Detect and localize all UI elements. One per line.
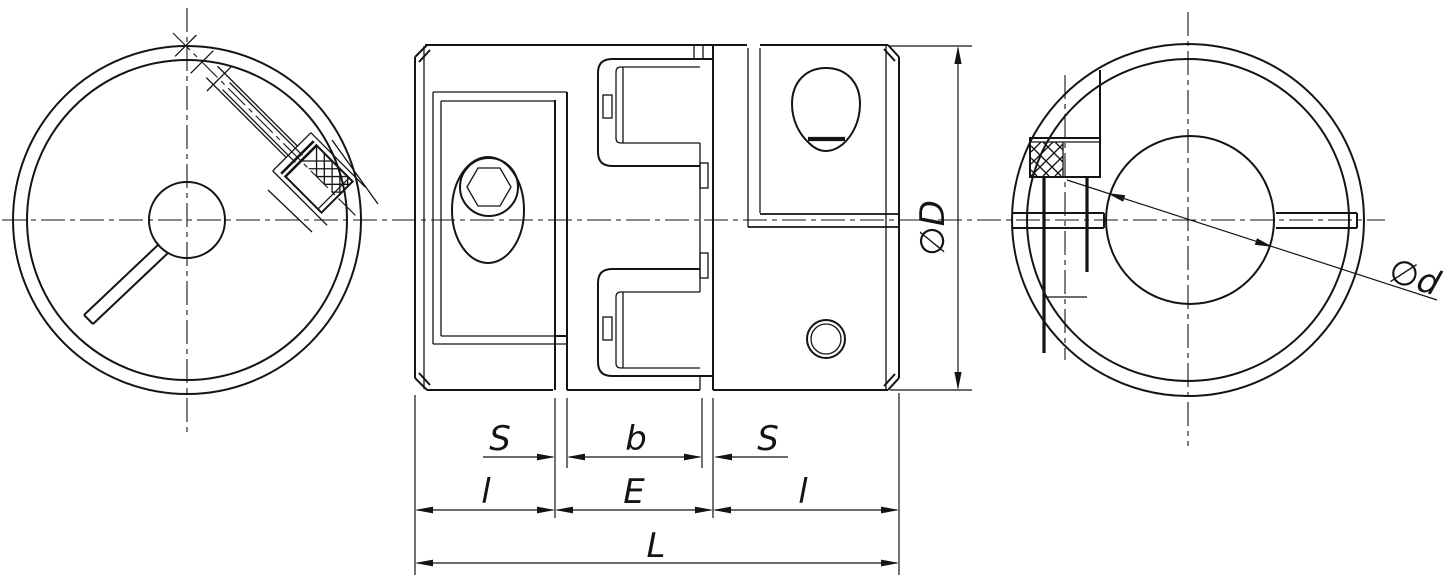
right-end-view — [1012, 12, 1364, 446]
spider-top-arm-outer — [598, 59, 713, 166]
spider-tab — [603, 317, 612, 340]
jaw-tab — [700, 253, 708, 278]
drawing-canvas: S b S l E l L ∅D ∅d — [0, 0, 1455, 579]
clamp-slit — [84, 244, 168, 324]
dim-label-l-right: l — [798, 472, 808, 512]
crosshatch — [1031, 142, 1063, 176]
screw-axis — [173, 33, 358, 218]
jaw-tab — [700, 163, 708, 188]
dim-label-outer-diameter: ∅D — [913, 200, 953, 256]
jaw-gap-edges — [694, 45, 703, 390]
dim-label-b: b — [625, 419, 647, 459]
clamp-screw-hole — [748, 48, 760, 227]
dim-label-s-right: S — [757, 419, 779, 459]
chamfer-top-left — [415, 45, 430, 62]
dim-label-total-length: L — [647, 526, 666, 566]
dim-label-l-left: l — [481, 472, 491, 512]
spider-bottom-arm-outer — [598, 269, 713, 376]
coupling-technical-drawing: S b S l E l L ∅D ∅d — [0, 0, 1455, 579]
hex-socket — [467, 168, 511, 206]
dim-label-s-left: S — [489, 419, 511, 459]
hub-face — [555, 92, 567, 390]
screw-head-circle — [460, 158, 518, 216]
spider-top-arm-inner — [616, 67, 700, 143]
spider-bottom-arm-inner — [616, 292, 700, 368]
dim-label-bore-diameter: ∅d — [1384, 251, 1445, 305]
left-end-view — [13, 8, 378, 434]
chamfer-bottom-left — [415, 373, 430, 390]
dimension-annotations: S b S l E l L ∅D ∅d — [415, 46, 1445, 575]
thread-hole-inner — [811, 324, 841, 354]
left-hub — [415, 45, 747, 390]
side-section-view — [415, 45, 899, 390]
spider-tab — [603, 95, 612, 118]
spider-and-jaws — [598, 45, 713, 390]
thread-hole-outer — [807, 320, 845, 358]
dim-label-e: E — [623, 472, 645, 512]
right-hub — [713, 45, 899, 390]
